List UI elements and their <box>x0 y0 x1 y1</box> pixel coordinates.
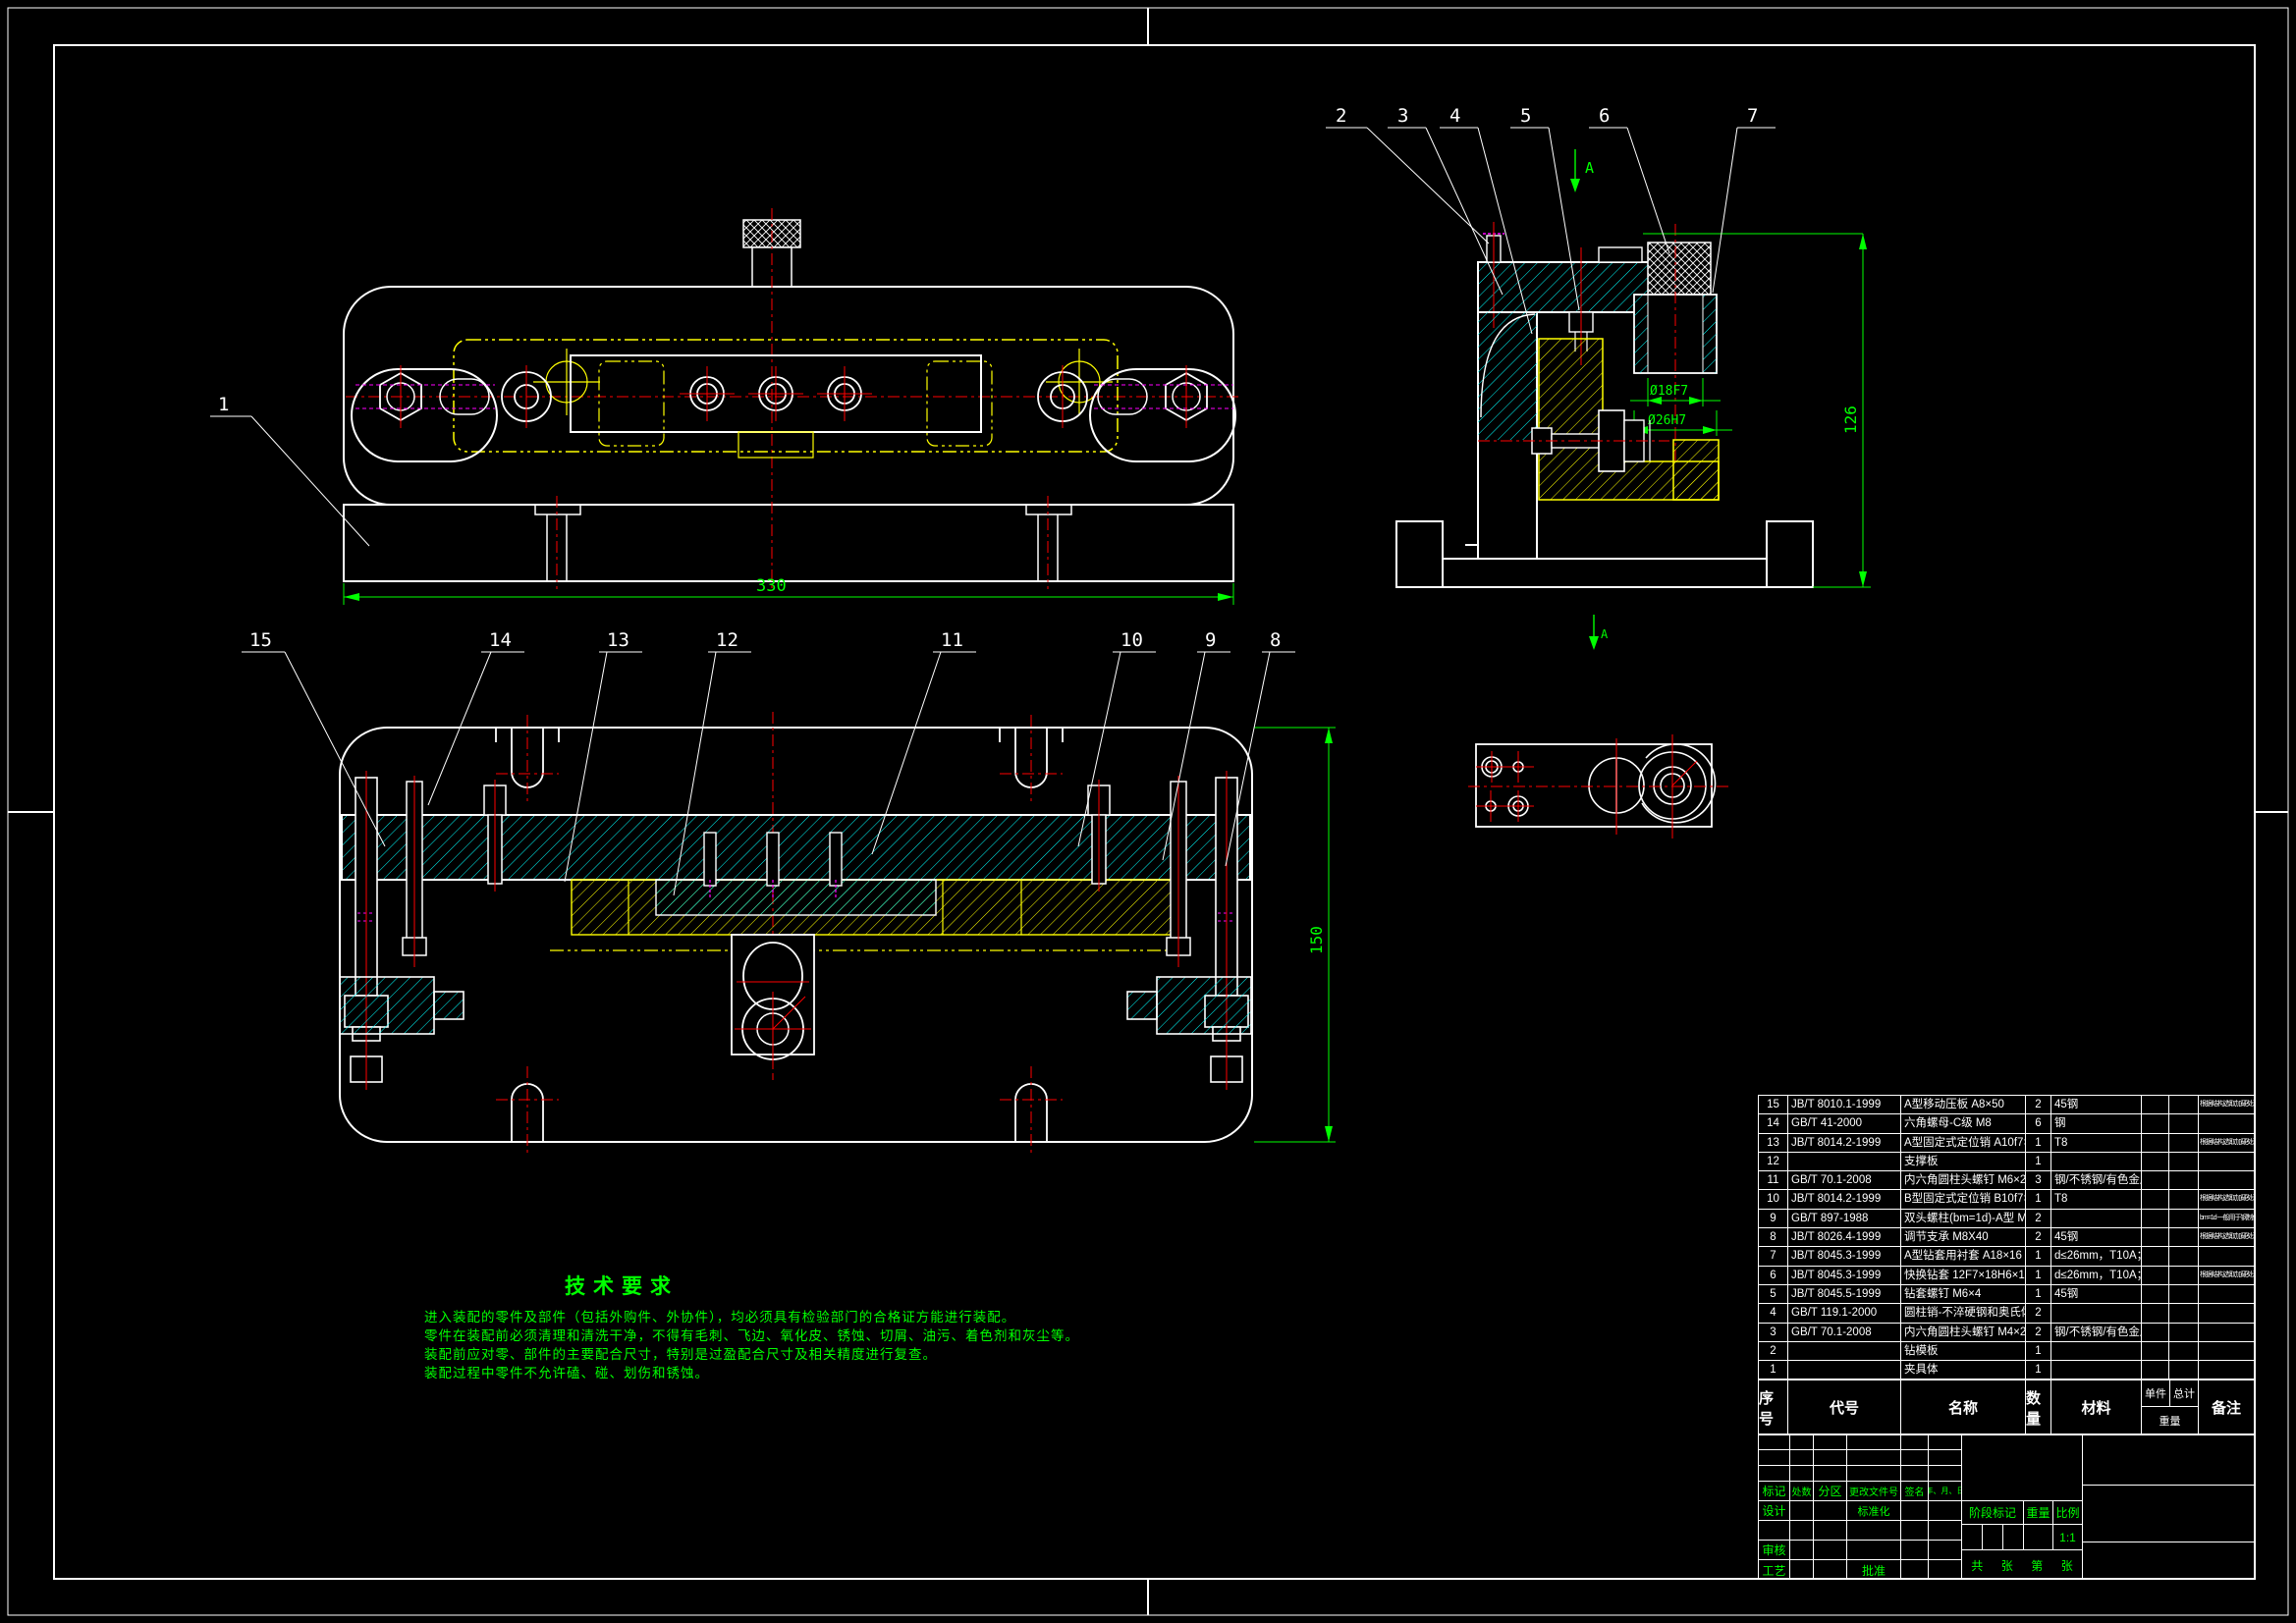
svg-text:10: 10 <box>1121 629 1143 651</box>
bom-header-no: 序号 <box>1759 1380 1788 1434</box>
bom-cell-total <box>2169 1247 2199 1266</box>
svg-text:11: 11 <box>941 629 963 651</box>
tech-req-title: 技术要求 <box>565 1271 679 1300</box>
dim-text-330: 330 <box>756 576 787 596</box>
bom-cell-remark: 根据结构选取加硬处理 <box>2199 1096 2254 1114</box>
bom-cell-qty: 1 <box>2026 1342 2051 1361</box>
bom-cell-qty: 6 <box>2026 1114 2051 1133</box>
tech-req-line: 零件在装配前必须清理和清洗干净，不得有毛刺、飞边、氧化皮、锈蚀、切屑、油污、着色… <box>424 1325 1079 1344</box>
title-block: 标记 处数 分区 更改文件号 签名 年、月、日 设计 标准化 审核 工艺 批准 … <box>1758 1434 2255 1579</box>
tb-label-zhang2: 张 <box>2061 1557 2073 1574</box>
svg-text:13: 13 <box>607 629 629 651</box>
bom-row: 11GB/T 70.1-2008内六角圆柱头螺钉 M6×203钢/不锈钢/有色金… <box>1759 1171 2254 1190</box>
bom-cell-remark <box>2199 1171 2254 1190</box>
bom-cell-code: GB/T 119.1-2000 <box>1788 1304 1901 1323</box>
bom-cell-code: JB/T 8045.5-1999 <box>1788 1285 1901 1304</box>
tb-label-fenqu: 分区 <box>1814 1482 1847 1501</box>
bom-cell-unit <box>2142 1342 2169 1361</box>
bom-cell-total <box>2169 1190 2199 1209</box>
bom-cell-name: 圆柱销-不淬硬钢和奥氏体不锈钢 4×25 <box>1901 1304 2026 1323</box>
svg-text:9: 9 <box>1205 629 1216 651</box>
bom-cell-no: 13 <box>1759 1134 1788 1153</box>
bom-cell-remark <box>2199 1304 2254 1323</box>
svg-text:6: 6 <box>1599 105 1610 127</box>
bom-cell-qty: 2 <box>2026 1096 2051 1114</box>
bom-cell-remark: 根据结构选取加硬处理 <box>2199 1190 2254 1209</box>
bom-cell-total <box>2169 1228 2199 1247</box>
tb-label-shenhe: 审核 <box>1759 1541 1790 1560</box>
bom-cell-no: 6 <box>1759 1267 1788 1285</box>
bom-cell-material <box>2051 1304 2142 1323</box>
bom-cell-qty: 2 <box>2026 1324 2051 1342</box>
svg-text:1: 1 <box>218 394 229 415</box>
clamp-plate-section <box>1478 262 1650 312</box>
bom-cell-material: T8 <box>2051 1134 2142 1153</box>
bom-cell-name: B型固定式定位销 B10f7×14 <box>1901 1190 2026 1209</box>
bom-row: 13JB/T 8014.2-1999A型固定式定位销 A10f7×141T8根据… <box>1759 1134 2254 1153</box>
bom-cell-remark: 根据结构选取加硬处理 <box>2199 1267 2254 1285</box>
position-target-marks <box>533 349 1113 415</box>
bom-cell-unit <box>2142 1190 2169 1209</box>
bom-cell-remark <box>2199 1153 2254 1171</box>
bom-cell-name: 钻套螺钉 M6×4 <box>1901 1285 2026 1304</box>
bom-cell-material <box>2051 1153 2142 1171</box>
dim-150: 150 <box>1254 728 1336 1142</box>
tb-label-zhang1: 张 <box>2001 1557 2013 1574</box>
bom-cell-unit <box>2142 1247 2169 1266</box>
tb-label-jieduan: 阶段标记 <box>1962 1501 2024 1525</box>
svg-text:12: 12 <box>716 629 738 651</box>
cad-drawing-sheet: 330 1 <box>0 0 2296 1623</box>
bom-cell-qty: 2 <box>2026 1304 2051 1323</box>
bom-cell-unit <box>2142 1285 2169 1304</box>
bom-cell-total <box>2169 1267 2199 1285</box>
tb-label-genggai: 更改文件号 <box>1847 1482 1901 1501</box>
bom-row: 9GB/T 897-1988双头螺柱(bm=1d)-A型 M8×502bm=1d… <box>1759 1210 2254 1228</box>
bom-cell-material: 45钢 <box>2051 1228 2142 1247</box>
bom-cell-name: 六角螺母-C级 M8 <box>1901 1114 2026 1133</box>
bom-cell-unit <box>2142 1228 2169 1247</box>
bom-cell-unit <box>2142 1210 2169 1228</box>
bom-cell-unit <box>2142 1153 2169 1171</box>
bom-cell-unit <box>2142 1267 2169 1285</box>
bom-cell-code <box>1788 1342 1901 1361</box>
bom-cell-unit <box>2142 1361 2169 1380</box>
svg-text:14: 14 <box>489 629 512 651</box>
bom-cell-code: GB/T 41-2000 <box>1788 1114 1901 1133</box>
bom-row: 14GB/T 41-2000六角螺母-C级 M86钢 <box>1759 1114 2254 1133</box>
tb-label-gongyi: 工艺 <box>1759 1560 1790 1580</box>
bom-cell-qty: 2 <box>2026 1228 2051 1247</box>
bom-cell-total <box>2169 1114 2199 1133</box>
fixture-plate-outline <box>344 287 1233 505</box>
bom-cell-no: 10 <box>1759 1190 1788 1209</box>
bom-cell-name: 钻模板 <box>1901 1342 2026 1361</box>
bom-cell-unit <box>2142 1324 2169 1342</box>
bom-row: 3GB/T 70.1-2008内六角圆柱头螺钉 M4×202钢/不锈钢/有色金属 <box>1759 1324 2254 1342</box>
view-bottom-section[interactable]: 150 15 14 13 12 11 10 9 8 <box>242 629 1336 1155</box>
right-clamp-assembly <box>1090 365 1235 461</box>
dim-text-150: 150 <box>1307 926 1326 954</box>
detail-plate-outline <box>1476 744 1712 827</box>
bom-cell-qty: 1 <box>2026 1361 2051 1380</box>
bom-cell-no: 1 <box>1759 1361 1788 1380</box>
bom-cell-material: 钢/不锈钢/有色金属 <box>2051 1171 2142 1190</box>
bom-cell-no: 8 <box>1759 1228 1788 1247</box>
bom-cell-material: 钢 <box>2051 1114 2142 1133</box>
bom-row: 5JB/T 8045.5-1999钻套螺钉 M6×4145钢 <box>1759 1285 2254 1304</box>
bom-cell-qty: 1 <box>2026 1247 2051 1266</box>
bom-cell-unit <box>2142 1114 2169 1133</box>
drill-holes <box>680 366 872 421</box>
tb-label-nianyueri: 年、月、日 <box>1929 1482 1962 1501</box>
bom-cell-code <box>1788 1153 1901 1171</box>
bom-header-weight: 重量 <box>2142 1407 2199 1434</box>
bom-cell-remark <box>2199 1247 2254 1266</box>
bom-cell-remark: 根据结构选取加硬处理 <box>2199 1228 2254 1247</box>
bom-cell-qty: 2 <box>2026 1210 2051 1228</box>
bom-cell-remark <box>2199 1342 2254 1361</box>
bom-cell-remark: 根据结构选取加硬处理 <box>2199 1134 2254 1153</box>
bom-cell-material: d≤26mm，T10A；d>26mm，20钢 <box>2051 1247 2142 1266</box>
left-clamp-assembly <box>352 365 497 461</box>
bom-cell-material: 45钢 <box>2051 1096 2142 1114</box>
svg-text:4: 4 <box>1449 105 1460 127</box>
bom-cell-code: JB/T 8010.1-1999 <box>1788 1096 1901 1114</box>
bom-cell-code: GB/T 897-1988 <box>1788 1210 1901 1228</box>
bom-cell-no: 7 <box>1759 1247 1788 1266</box>
bom-cell-no: 15 <box>1759 1096 1788 1114</box>
bom-cell-qty: 1 <box>2026 1267 2051 1285</box>
bom-row: 12支撑板1 <box>1759 1153 2254 1171</box>
bom-cell-no: 12 <box>1759 1153 1788 1171</box>
bom-cell-unit <box>2142 1171 2169 1190</box>
tech-req-line: 进入装配的零件及部件（包括外购件、外协件），均必须具有检验部门的合格证方能进行装… <box>424 1306 1015 1325</box>
section-band <box>342 815 1250 880</box>
bom-cell-unit <box>2142 1304 2169 1323</box>
bom-cell-name: 内六角圆柱头螺钉 M4×20 <box>1901 1324 2026 1342</box>
bom-cell-no: 4 <box>1759 1304 1788 1323</box>
section-marker-a-top: A <box>1570 149 1594 192</box>
bom-cell-remark <box>2199 1114 2254 1133</box>
bom-cell-total <box>2169 1324 2199 1342</box>
dim-text-126: 126 <box>1841 406 1860 434</box>
bom-cell-qty: 3 <box>2026 1171 2051 1190</box>
bom-cell-code: GB/T 70.1-2008 <box>1788 1324 1901 1342</box>
bom-cell-remark: bm=1d 一般用于钢制件 <box>2199 1210 2254 1228</box>
tb-label-qianming: 签名 <box>1901 1482 1929 1501</box>
bom-header-remark: 备注 <box>2199 1380 2254 1434</box>
bom-cell-material: T8 <box>2051 1190 2142 1209</box>
dim-text-fit-inner: Ø18F7 <box>1650 384 1688 399</box>
bom-cell-name: 双头螺柱(bm=1d)-A型 M8×50 <box>1901 1210 2026 1228</box>
bom-cell-name: 夹具体 <box>1901 1361 2026 1380</box>
bom-cell-code: JB/T 8045.3-1999 <box>1788 1247 1901 1266</box>
bom-cell-total <box>2169 1210 2199 1228</box>
bom-cell-no: 14 <box>1759 1114 1788 1133</box>
bom-rows: 15JB/T 8010.1-1999A型移动压板 A8×50245钢根据结构选取… <box>1759 1096 2254 1380</box>
bom-cell-code: JB/T 8014.2-1999 <box>1788 1134 1901 1153</box>
bom-row: 2钻模板1 <box>1759 1342 2254 1361</box>
svg-text:15: 15 <box>249 629 272 651</box>
base-section <box>1396 521 1813 587</box>
bom-cell-material <box>2051 1210 2142 1228</box>
bom-header: 序号 代号 名称 数量 材料 单件 总计 重量 备注 <box>1759 1380 2254 1434</box>
view-detail-a[interactable]: A <box>1468 615 1728 839</box>
tb-label-chushu: 处数 <box>1790 1482 1814 1501</box>
bom-cell-unit <box>2142 1096 2169 1114</box>
bom-row: 8JB/T 8026.4-1999调节支承 M8X40245钢根据结构选取加硬处… <box>1759 1228 2254 1247</box>
svg-text:3: 3 <box>1397 105 1408 127</box>
bom-header-material: 材料 <box>2051 1380 2142 1434</box>
bom-row: 4GB/T 119.1-2000圆柱销-不淬硬钢和奥氏体不锈钢 4×252 <box>1759 1304 2254 1323</box>
svg-text:2: 2 <box>1336 105 1346 127</box>
tech-req-line: 装配前应对零、部件的主要配合尺寸，特别是过盈配合尺寸及相关精度进行复查。 <box>424 1343 937 1363</box>
section-marker-a-bottom: A <box>1589 615 1609 650</box>
bom-cell-total <box>2169 1361 2199 1380</box>
bill-of-materials: 15JB/T 8010.1-1999A型移动压板 A8×50245钢根据结构选取… <box>1758 1095 2255 1435</box>
dim-text-fit-outer: Ø26H7 <box>1648 413 1686 428</box>
tb-label-bili: 比例 <box>2053 1501 2083 1525</box>
detail-holes <box>1482 744 1716 823</box>
view-side-section[interactable]: Ø18F7 Ø26H7 <box>1326 105 1871 587</box>
view-top-plan[interactable]: 330 1 <box>210 208 1239 605</box>
bom-cell-no: 9 <box>1759 1210 1788 1228</box>
bom-cell-total <box>2169 1171 2199 1190</box>
bom-cell-code: JB/T 8014.2-1999 <box>1788 1190 1901 1209</box>
bom-cell-remark <box>2199 1324 2254 1342</box>
bom-cell-code: GB/T 70.1-2008 <box>1788 1171 1901 1190</box>
bom-cell-name: 调节支承 M8X40 <box>1901 1228 2026 1247</box>
tb-label-di: 第 <box>2031 1557 2043 1574</box>
bom-row: 7JB/T 8045.3-1999A型钻套用衬套 A18×161d≤26mm，T… <box>1759 1247 2254 1266</box>
bom-cell-qty: 1 <box>2026 1285 2051 1304</box>
bom-cell-name: A型移动压板 A8×50 <box>1901 1096 2026 1114</box>
bom-cell-no: 11 <box>1759 1171 1788 1190</box>
bom-cell-code: JB/T 8026.4-1999 <box>1788 1228 1901 1247</box>
tb-label-zhongliang: 重量 <box>2024 1501 2053 1525</box>
bom-cell-material: d≤26mm，T10A；d>26mm，20钢 <box>2051 1267 2142 1285</box>
svg-text:7: 7 <box>1747 105 1758 127</box>
bom-cell-total <box>2169 1285 2199 1304</box>
bom-cell-name: 内六角圆柱头螺钉 M6×20 <box>1901 1171 2026 1190</box>
tb-label-sheji: 设计 <box>1759 1501 1790 1521</box>
bom-cell-remark <box>2199 1285 2254 1304</box>
bom-row: 1夹具体1 <box>1759 1361 2254 1380</box>
tb-label-pizhun: 批准 <box>1847 1560 1901 1580</box>
bom-header-qty: 数量 <box>2026 1380 2051 1434</box>
bom-cell-total <box>2169 1134 2199 1153</box>
bom-cell-name: 支撑板 <box>1901 1153 2026 1171</box>
bom-cell-no: 3 <box>1759 1324 1788 1342</box>
bom-header-total: 总计 <box>2170 1380 2199 1407</box>
bom-cell-qty: 1 <box>2026 1134 2051 1153</box>
bom-cell-material <box>2051 1342 2142 1361</box>
bom-cell-total <box>2169 1304 2199 1323</box>
bom-cell-name: 快换钻套 12F7×18H6×14或12F7×18h6×16 <box>1901 1267 2026 1285</box>
bom-cell-material: 45钢 <box>2051 1285 2142 1304</box>
svg-text:5: 5 <box>1520 105 1531 127</box>
detail-centerlines <box>1468 734 1728 839</box>
base-strip <box>344 505 1233 581</box>
svg-text:8: 8 <box>1270 629 1281 651</box>
bom-cell-code: JB/T 8045.3-1999 <box>1788 1267 1901 1285</box>
bom-cell-name: A型固定式定位销 A10f7×14 <box>1901 1134 2026 1153</box>
bom-row: 10JB/T 8014.2-1999B型固定式定位销 B10f7×141T8根据… <box>1759 1190 2254 1209</box>
bom-cell-no: 5 <box>1759 1285 1788 1304</box>
bom-cell-qty: 1 <box>2026 1153 2051 1171</box>
tb-label-biaoji: 标记 <box>1759 1482 1790 1501</box>
bom-cell-unit <box>2142 1134 2169 1153</box>
bom-row: 15JB/T 8010.1-1999A型移动压板 A8×50245钢根据结构选取… <box>1759 1096 2254 1114</box>
center-boss <box>732 935 814 1066</box>
tech-req-line: 装配过程中零件不允许磕、碰、划伤和锈蚀。 <box>424 1362 709 1381</box>
bom-cell-name: A型钻套用衬套 A18×16 <box>1901 1247 2026 1266</box>
tb-value-scale: 1:1 <box>2053 1525 2083 1550</box>
support-plate-section <box>550 880 1178 950</box>
bom-cell-remark <box>2199 1361 2254 1380</box>
bom-cell-total <box>2169 1153 2199 1171</box>
bom-cell-total <box>2169 1096 2199 1114</box>
tb-label-gong: 共 <box>1971 1557 1983 1574</box>
bom-cell-material <box>2051 1361 2142 1380</box>
bom-cell-code <box>1788 1361 1901 1380</box>
bom-cell-material: 钢/不锈钢/有色金属 <box>2051 1324 2142 1342</box>
bom-header-unit: 单件 <box>2142 1380 2170 1407</box>
bom-header-code: 代号 <box>1788 1380 1901 1434</box>
svg-text:A: A <box>1585 159 1594 177</box>
bom-row: 6JB/T 8045.3-1999快换钻套 12F7×18H6×14或12F7×… <box>1759 1267 2254 1285</box>
bom-cell-total <box>2169 1342 2199 1361</box>
svg-text:A: A <box>1601 627 1609 641</box>
bom-header-name: 名称 <box>1901 1380 2026 1434</box>
bom-cell-qty: 1 <box>2026 1190 2051 1209</box>
bom-cell-no: 2 <box>1759 1342 1788 1361</box>
tb-label-biaozhunhua: 标准化 <box>1847 1501 1901 1521</box>
